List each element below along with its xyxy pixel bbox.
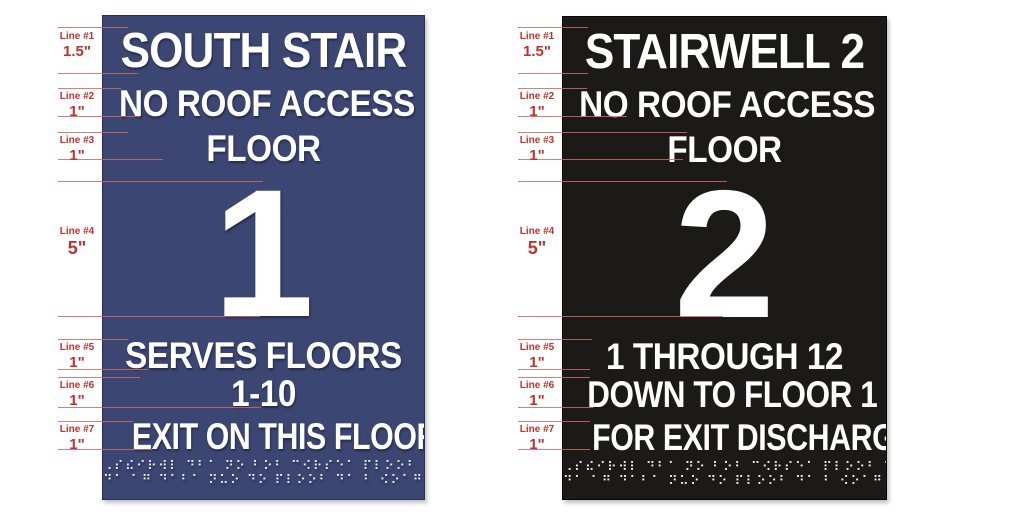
dimension-label-line3: Line #3 1" [54,135,100,164]
dimension-value: 1" [514,392,560,409]
dimension-label-line1: Line #1 1.5" [514,31,560,60]
dimension-name: Line #1 [54,31,100,43]
sign-floor-number: 2 [563,163,886,345]
dimension-value: 1" [514,147,560,164]
dimension-name: Line #4 [54,226,100,238]
dimension-name: Line #5 [54,342,100,354]
dimension-name: Line #3 [514,135,560,147]
braille-row-2: ⠙⠁ ⠁⠛ ⠙⠁⠃⠁ ⠝⠥⠕ ⠙⠕ ⠏⠇⠕⠕⠃ ⠙⠁ ⠃ ⠪⠕⠁⠛ ⠁⠥⠙⠃⠎ [563,475,886,488]
dimension-line [58,339,128,340]
dimension-label-line2: Line #2 1" [514,91,560,120]
dimension-value: 1" [514,436,560,453]
sign-south-stair: SOUTH STAIR NO ROOF ACCESS FLOOR 1 SERVE… [102,15,425,500]
dimension-name: Line #7 [54,424,100,436]
dimension-value: 1.5" [54,43,100,60]
dimension-line [58,27,128,28]
dimension-value: 1" [54,147,100,164]
dimension-name: Line #6 [514,380,560,392]
dimension-name: Line #1 [514,31,560,43]
dimension-value: 1" [54,392,100,409]
dimension-name: Line #3 [54,135,100,147]
dimension-line [518,73,588,74]
braille-row-1: ⠠⠎⠮⠊⠗⠺⠇ ⠙⠃⠁ ⠝⠕ ⠃⠕⠃ ⠉⠪⠗⠎⠑⠁ ⠏⠇⠕⠕⠃ ⠙⠃⠁ [563,461,886,474]
sign-line-6: DOWN TO FLOOR 1 [587,376,862,413]
braille-row-1: ⠠⠎⠮⠊⠗⠺⠇ ⠙⠃⠁ ⠝⠕ ⠃⠕⠃ ⠉⠪⠗⠎⠑⠁ ⠏⠇⠕⠕⠃ ⠙⠃⠁ [103,460,424,473]
dimension-value: 1" [54,354,100,371]
dimension-line [518,421,590,422]
dimension-line [518,377,590,378]
sign-title: STAIRWELL 2 [579,28,870,77]
dimension-label-line4: Line #4 5" [514,226,560,258]
dimension-name: Line #6 [54,380,100,392]
dimension-line [518,27,588,28]
dimension-name: Line #2 [54,91,100,103]
dimension-name: Line #5 [514,342,560,354]
dimension-label-line3: Line #3 1" [514,135,560,164]
dimension-line [58,421,133,422]
dimension-line [518,88,587,89]
dimension-line [518,339,592,340]
dimension-line [518,181,727,182]
sign-line-7: FOR EXIT DISCHARGE [592,419,857,456]
sign-title: SOUTH STAIR [119,27,408,76]
dimension-name: Line #2 [514,91,560,103]
dimension-value: 1.5" [514,43,560,60]
dimension-label-line4: Line #4 5" [54,226,100,258]
dimension-label-line1: Line #1 1.5" [54,31,100,60]
sign-line-5: SERVES FLOORS [119,337,408,374]
stair-sign-spec-sheet: SOUTH STAIR NO ROOF ACCESS FLOOR 1 SERVE… [0,0,1024,512]
sign-line-2: NO ROOF ACCESS [119,85,408,122]
dimension-line [58,181,263,182]
dimension-label-line5: Line #5 1" [514,342,560,371]
dimension-value: 5" [54,238,100,258]
dimension-label-line6: Line #6 1" [54,380,100,409]
sign-line-5: 1 THROUGH 12 [579,338,870,375]
braille-row-2: ⠙⠁ ⠁⠛ ⠙⠁⠃⠁ ⠝⠥⠕ ⠙⠕ ⠏⠇⠕⠕⠃ ⠙⠁ ⠃ ⠪⠕⠁⠛ ⠁⠥⠙⠃⠎ [103,474,424,487]
dimension-label-line6: Line #6 1" [514,380,560,409]
dimension-value: 1" [54,436,100,453]
sign-stairwell-2: STAIRWELL 2 NO ROOF ACCESS FLOOR 2 1 THR… [562,16,887,500]
dimension-label-line7: Line #7 1" [54,424,100,453]
dimension-label-line7: Line #7 1" [514,424,560,453]
dimension-line [518,132,687,133]
dimension-value: 1" [54,103,100,120]
sign-line-2: NO ROOF ACCESS [579,86,870,123]
dimension-value: 5" [514,238,560,258]
dimension-line [58,73,138,74]
dimension-line [518,316,723,317]
dimension-line [58,316,260,317]
dimension-label-line5: Line #5 1" [54,342,100,371]
dimension-value: 1" [514,103,560,120]
dimension-label-line2: Line #2 1" [54,91,100,120]
dimension-name: Line #4 [514,226,560,238]
dimension-value: 1" [514,354,560,371]
dimension-line [58,377,140,378]
dimension-name: Line #7 [514,424,560,436]
dimension-line [58,88,121,89]
dimension-line [58,132,128,133]
sign-line-7: EXIT ON THIS FLOOR [132,418,395,455]
